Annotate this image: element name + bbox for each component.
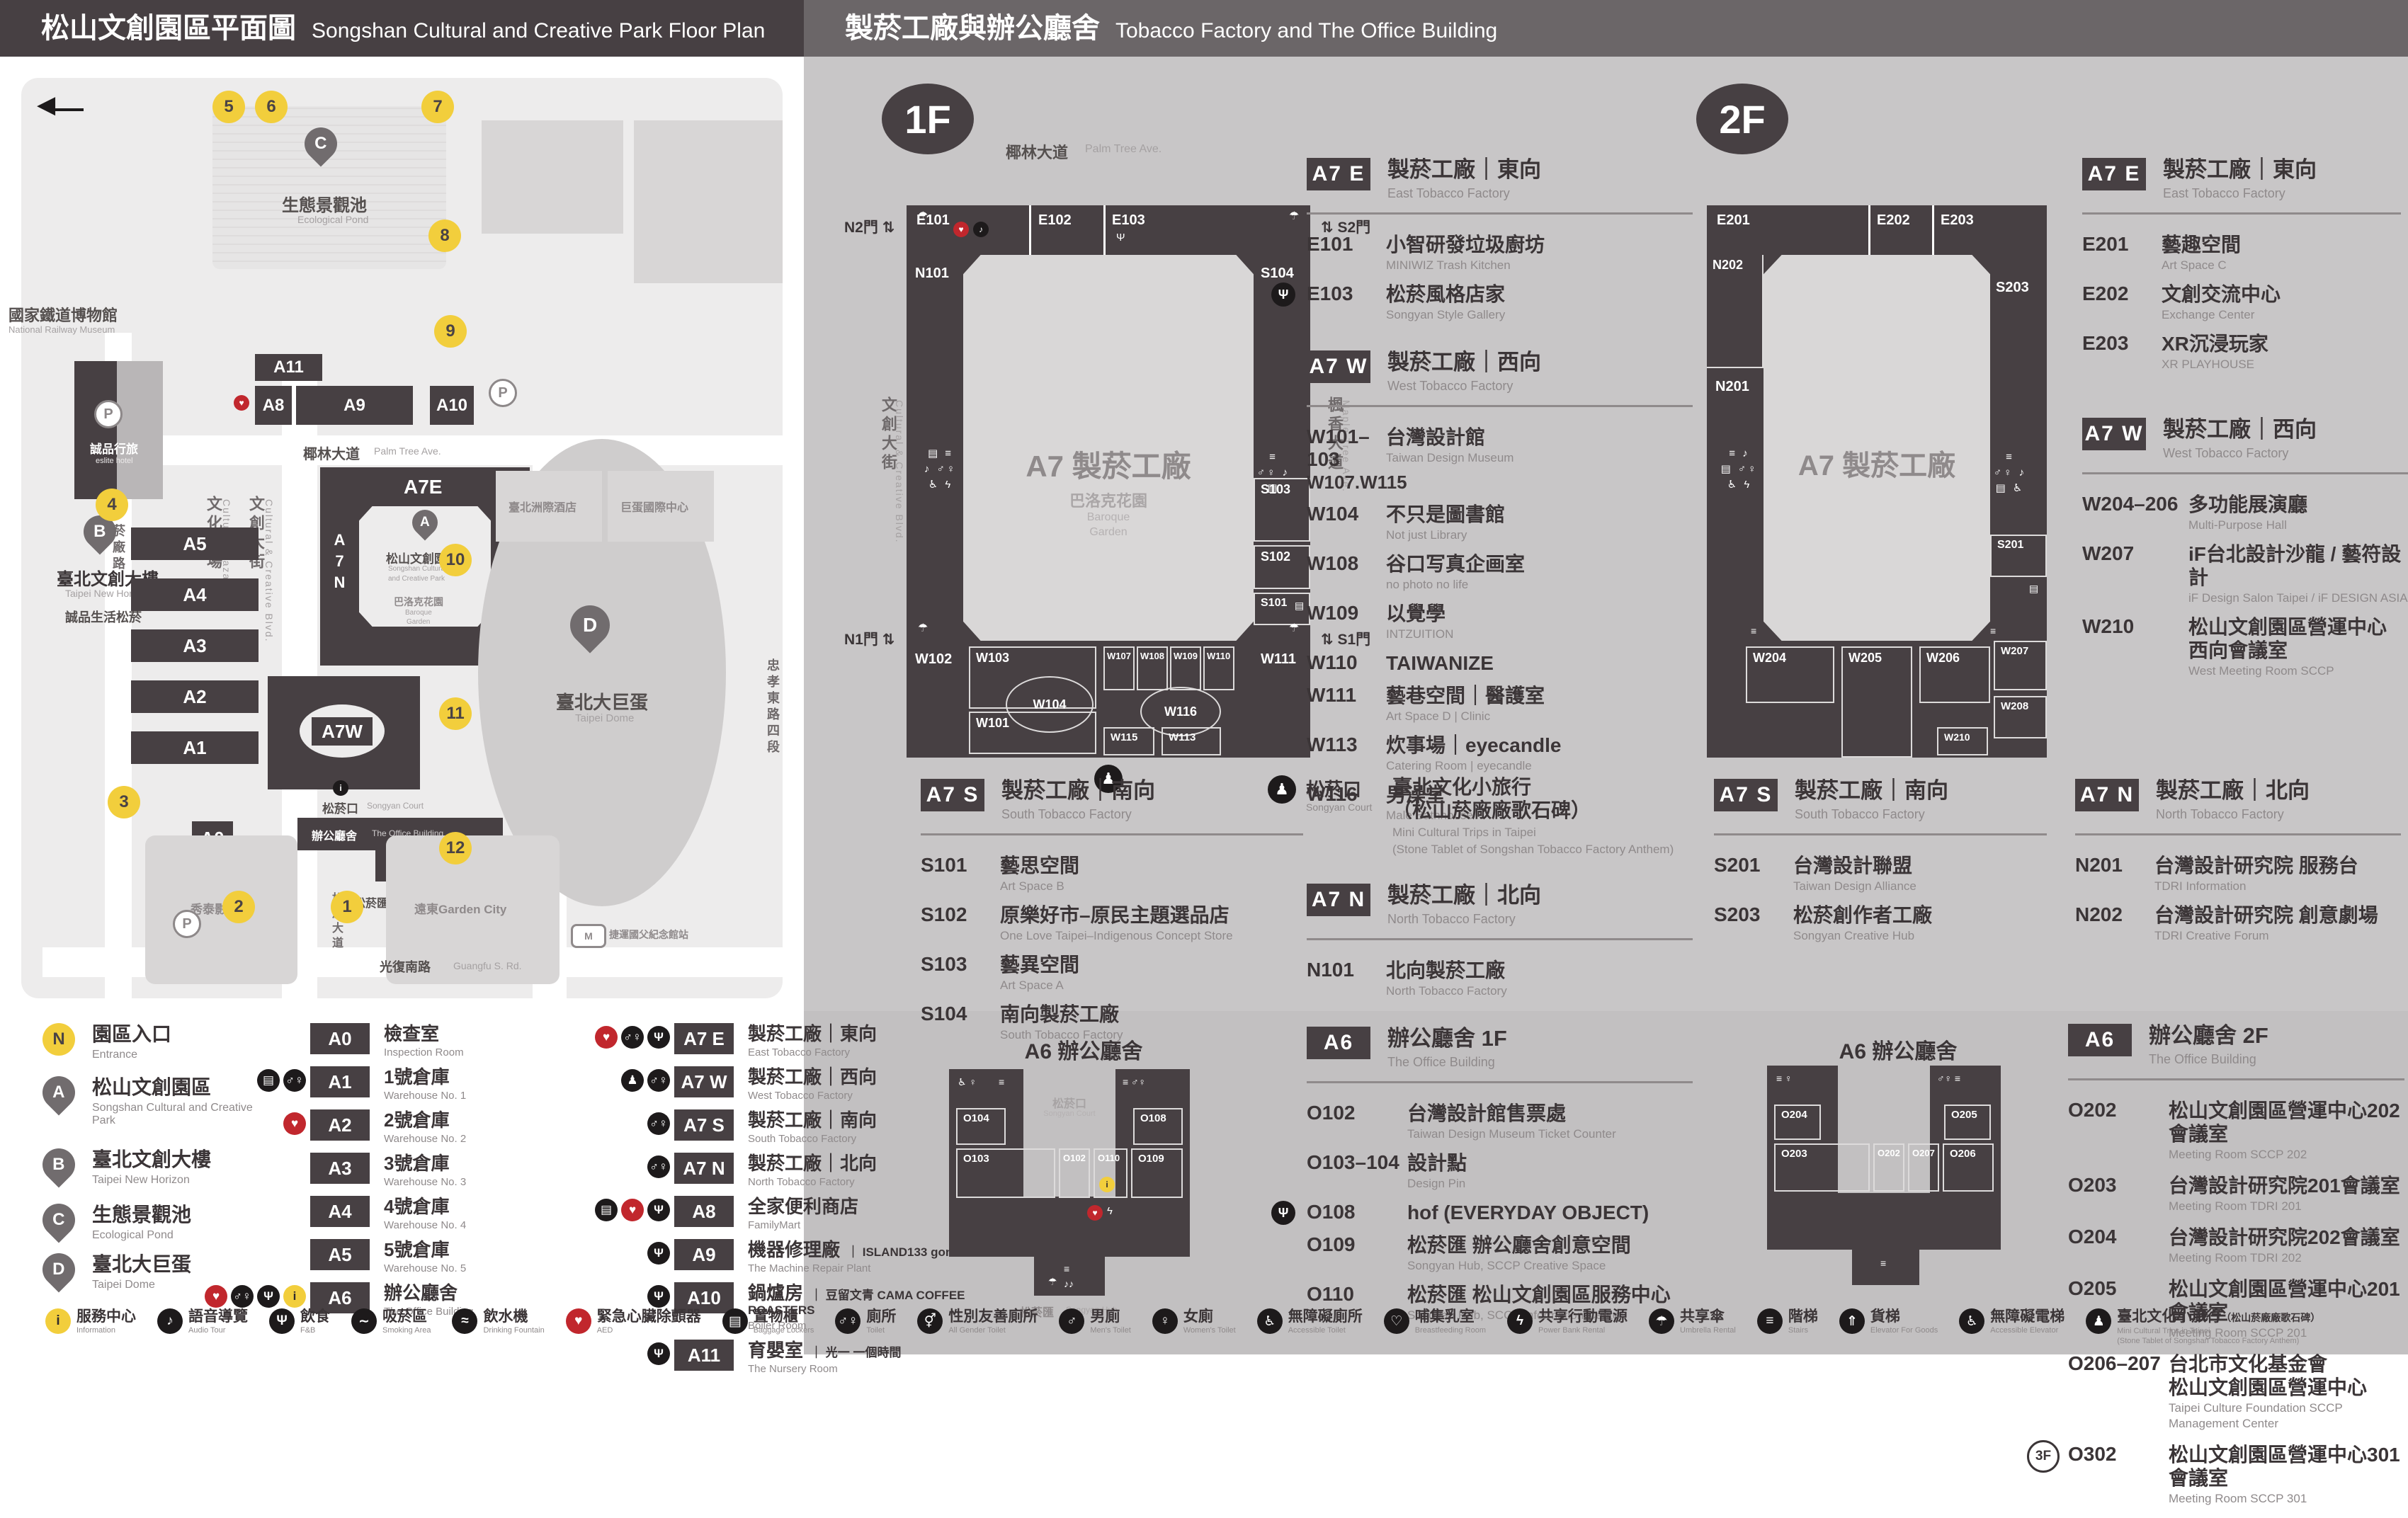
toilet-icon: ♂♀ xyxy=(647,1112,670,1135)
room-S104: S104 xyxy=(1261,266,1294,282)
powerbank-icon: ϟ xyxy=(1107,1205,1113,1217)
room-O202: O202 xyxy=(1873,1143,1904,1192)
court-en: Songyan Court xyxy=(367,801,424,811)
section-title-zh: 製菸工廠｜北向 xyxy=(1387,884,1541,908)
room-W102: W102 xyxy=(915,651,952,668)
section-title-zh: 製菸工廠｜東向 xyxy=(2163,158,2317,182)
facility-item: ♡ 哺集乳室 Breastfeeding Room xyxy=(1384,1308,1486,1335)
room-list-row: W111 藝巷空間｜醫護室Art Space D | Clinic xyxy=(1307,684,1693,724)
facility-item: ϟ 共享行動電源 Power Bank Rental xyxy=(1507,1308,1628,1335)
section-title-zh: 辦公廳舍 2F xyxy=(2149,1024,2268,1048)
men-icon: ♂ xyxy=(1059,1308,1084,1334)
gate-N2: N2門 ⇅ xyxy=(844,216,895,237)
room-E201: E201 xyxy=(1717,212,1750,229)
blvd-en: Cultural & Creative Blvd. xyxy=(263,499,275,669)
nursing-icon: ♡ xyxy=(1384,1308,1409,1334)
toilet-icon: ♂♀ xyxy=(647,1155,670,1178)
section-badge: A7 E xyxy=(1307,158,1370,190)
stairs-icon: ≡ xyxy=(1757,1308,1783,1334)
neighbor-building xyxy=(482,120,623,234)
parking-icon: P xyxy=(489,379,517,407)
accessible-toilet-icon: ♿ ♀ xyxy=(958,1076,977,1088)
f1-baroque-en2: Garden xyxy=(1038,526,1179,539)
room-O108: O108 xyxy=(1133,1108,1183,1145)
hotel-building: 臺北洲際酒店 xyxy=(496,471,602,542)
info-icon: i xyxy=(45,1308,71,1334)
aed-icon: ♥ xyxy=(234,395,249,411)
pin-B-icon: B xyxy=(35,1141,81,1187)
facility-cluster-west: ▤ ≡♪ ♂♀♿ ϟ xyxy=(919,446,962,493)
room-list-row: O109 松菸匯 辦公廳舍創意空間Songyan Hub, SCCP Creat… xyxy=(1307,1233,1693,1274)
section-badge: A7 S xyxy=(1714,779,1778,811)
legend-row: A4 4號倉庫 Warehouse No. 4 xyxy=(310,1196,608,1232)
section-title-en: West Tobacco Factory xyxy=(2163,446,2317,461)
f1-blvd-en: Cultural & Creative Blvd. xyxy=(894,400,905,570)
building-badge: A8 xyxy=(674,1196,734,1227)
section-badge: A7 N xyxy=(1307,884,1370,916)
mrt-zh: 捷運國父紀念館站 xyxy=(609,928,688,942)
entrance-10: 10 xyxy=(439,544,472,576)
room-W210: W210 xyxy=(1937,727,1988,755)
legend-buildings-col1: A0 檢查室 Inspection Room ▤♂♀ A1 1號倉庫 Wareh… xyxy=(310,1023,608,1325)
o2-map-title: A6 辦公廳舍 xyxy=(1817,1034,1980,1065)
label-A7E: A7E xyxy=(404,476,442,498)
room-O103: O103 xyxy=(956,1148,1055,1198)
room-E202: E202 xyxy=(1877,212,1910,229)
toilet-icon: ♂♀ xyxy=(647,1069,670,1092)
room-E203: E203 xyxy=(1941,212,1974,229)
room-W107: W107 xyxy=(1103,646,1135,690)
food-icon: Ψ xyxy=(1116,232,1125,244)
allgender-icon: ⚥ xyxy=(917,1308,943,1334)
railway-museum-zh: 國家鐵道博物館 xyxy=(8,303,118,326)
eslite-hotel-building: P 誠品行旅 eslite hotel xyxy=(74,361,163,499)
legend-B-zh: 臺北文創大樓 xyxy=(92,1148,211,1171)
facility-item: ∼ 吸菸區 Smoking Area xyxy=(351,1308,431,1335)
entrance-5: 5 xyxy=(212,91,245,123)
section-title-en: East Tobacco Factory xyxy=(2163,186,2317,201)
guangfu-en: Guangfu S. Rd. xyxy=(453,960,522,971)
audio-icon: ♪ xyxy=(157,1308,183,1334)
facility-item: ▤ 置物櫃 Baggage Lockers xyxy=(722,1308,814,1335)
umbrella-icon: ☂ xyxy=(1649,1308,1674,1334)
legend-pin-C: C 生態景觀池 Ecological Pond xyxy=(42,1204,191,1242)
entrance-8: 8 xyxy=(428,219,461,252)
facility-item: ⇑ 貨梯 Elevator For Goods xyxy=(1839,1308,1938,1335)
room-W204: W204 xyxy=(1746,646,1834,703)
aed-icon: ♥ xyxy=(595,1026,618,1049)
north-arrow-icon: ◀ xyxy=(37,91,84,119)
room-list-row: E203 XR沉浸玩家XR PLAYHOUSE xyxy=(2082,332,2401,372)
room-list-row: S201 台灣設計聯盟Taiwan Design Alliance xyxy=(1714,854,2047,894)
food-icon: Ψ xyxy=(647,1199,670,1221)
section-badge: A7 W xyxy=(2082,418,2146,450)
left-title-en: Songshan Cultural and Creative Park Floo… xyxy=(312,19,765,43)
room-S102: S102 xyxy=(1254,545,1310,589)
room-list-row: W204–206 多功能展演廳Multi-Purpose Hall xyxy=(2082,493,2408,533)
room-list-row: N101 北向製菸工廠North Tobacco Factory xyxy=(1307,959,1693,999)
audio-tour-icon: ♪♪ xyxy=(1064,1278,1074,1289)
umbrella-icon: ☂ xyxy=(1048,1276,1057,1288)
room-list-row: S103 藝異空間Art Space A xyxy=(921,953,1303,993)
entrance-6: 6 xyxy=(255,91,288,123)
room-W205: W205 xyxy=(1841,646,1912,758)
pin-C-icon: C xyxy=(35,1197,81,1243)
building-badge: A7 E xyxy=(674,1023,734,1054)
section-title-zh: 製菸工廠｜南向 xyxy=(1001,779,1155,803)
floor1-map: E101 E102 E103 Ψ ♥ ♪ N101 S104 S103 S102… xyxy=(907,166,1316,775)
stairs-icon: ≡ xyxy=(1751,625,1756,637)
section-f1-court: ♟ 松菸口 Songyan Court 臺北文化小旅行 （松山菸廠廠歌石碑） M… xyxy=(1268,775,1693,857)
pond-label-en: Ecological Pond xyxy=(297,214,368,225)
pin-A-icon: A xyxy=(35,1069,81,1115)
section-title-en: South Tobacco Factory xyxy=(1001,807,1155,822)
stairs-icon: ≡ xyxy=(1064,1263,1069,1274)
hotel-zh: 臺北洲際酒店 xyxy=(509,498,577,515)
o1-court-en: Songyan Court xyxy=(1027,1109,1112,1118)
room-list-row: 3F O302 松山文創園區營運中心301會議室Meeting Room SCC… xyxy=(2068,1443,2404,1507)
section-title-zh: 製菸工廠｜北向 xyxy=(2156,779,2310,803)
section-title-en: North Tobacco Factory xyxy=(2156,807,2310,822)
facility-item: ♥ 緊急心臟除顫器 AED xyxy=(566,1308,701,1335)
info-icon: i xyxy=(283,1285,306,1308)
room-E102: E102 xyxy=(1038,212,1072,229)
building-badge: A7 N xyxy=(674,1153,734,1184)
umbrella-icon: ☂ xyxy=(1289,209,1299,223)
entrance-1: 1 xyxy=(331,891,363,923)
building-badge: A7 W xyxy=(674,1066,734,1097)
court-item-zh1: 臺北文化小旅行 xyxy=(1392,775,1674,799)
legend-D-en: Taipei Dome xyxy=(92,1279,191,1291)
food-icon: Ψ xyxy=(257,1285,280,1308)
stairs-icon: ≡ xyxy=(999,1076,1004,1088)
left-title-zh: 松山文創園區平面圖 xyxy=(41,0,296,57)
building-A7W: A7W xyxy=(268,676,420,789)
court-item-en1: Mini Cultural Trips in Taipei xyxy=(1392,825,1674,840)
section-title-zh: 製菸工廠｜東向 xyxy=(1387,158,1541,182)
yanchang-zh: 菸廠路 xyxy=(109,524,127,623)
section-title-en: The Office Building xyxy=(1387,1055,1507,1070)
facility-item: ≈ 飲水機 Drinking Fountain xyxy=(452,1308,544,1335)
section-title-en: West Tobacco Factory xyxy=(1387,379,1541,394)
section-badge: A6 xyxy=(2068,1024,2132,1056)
locker-icon: ▤ xyxy=(2029,583,2038,595)
legend-row: ♥ A2 2號倉庫 Warehouse No. 2 xyxy=(310,1109,608,1146)
section-f2-south: A7 S 製菸工廠｜南向 South Tobacco Factory S201 … xyxy=(1714,779,2047,953)
room-list-row: W207 iF台北設計沙龍 / 藝符設計iF Design Salon Taip… xyxy=(2082,542,2408,606)
room-list-row: W110 TAIWANIZE xyxy=(1307,651,1693,675)
section-badge: A6 xyxy=(1307,1027,1370,1059)
room-list-row: W108 谷口写真企画室no photo no life xyxy=(1307,552,1693,593)
right-title-en: Tobacco Factory and The Office Building xyxy=(1115,19,1497,43)
entrance-4: 4 xyxy=(96,489,128,521)
gate-N1: N1門 ⇅ xyxy=(844,628,895,649)
toilet-icon: ♂♀ xyxy=(231,1285,254,1308)
dome-zh: 臺北大巨蛋 xyxy=(556,688,648,714)
palm-ave-en: Palm Tree Ave. xyxy=(374,445,441,457)
room-W111: W111 xyxy=(1261,651,1296,668)
room-list-row: O102 台灣設計館售票處Taiwan Design Museum Ticket… xyxy=(1307,1102,1693,1142)
room-list-row: E202 文創交流中心Exchange Center xyxy=(2082,283,2401,323)
building-A10: A10 xyxy=(430,386,474,425)
aed-icon: ♥ xyxy=(283,1112,306,1135)
umbrella-icon: ☂ xyxy=(918,621,928,635)
legend-C-en: Ecological Pond xyxy=(92,1229,191,1242)
dome-center-building: 巨蛋國際中心 xyxy=(608,471,714,542)
facility-item: ♿ 無障礙廁所 Accessible Toilet xyxy=(1257,1308,1363,1335)
fountain-icon: ≈ xyxy=(452,1308,477,1334)
room-N101: N101 xyxy=(915,266,949,282)
section-badge: A7 N xyxy=(2075,779,2139,811)
label-A7W: A7W xyxy=(312,717,373,746)
office-zh: 辦公廳舍 xyxy=(312,826,357,843)
room-S203: S203 xyxy=(1996,280,2029,296)
food-icon: Ψ xyxy=(647,1242,670,1265)
building-A8: A8 xyxy=(255,386,292,425)
trip-icon: ♟ xyxy=(2086,1308,2111,1334)
stairs-icon: ≡ ♀ xyxy=(1776,1073,1793,1084)
section-title-zh: 製菸工廠｜南向 xyxy=(1795,779,1948,803)
court-item-zh2: （松山菸廠廠歌石碑） xyxy=(1392,799,1674,822)
room-list-row: O202 松山文創園區營運中心202會議室Meeting Room SCCP 2… xyxy=(2068,1099,2404,1163)
railway-museum-en: National Railway Museum xyxy=(8,324,115,335)
room-O205: O205 xyxy=(1944,1105,1991,1140)
pin-D-icon: D xyxy=(35,1246,81,1292)
room-list-row: O206–207 台北市文化基金會松山文創園區營運中心Taipei Cultur… xyxy=(2068,1352,2404,1432)
food-icon: Ψ xyxy=(1271,1201,1295,1225)
room-list-row: W113 炊事場｜eyecandleCatering Room | eyecan… xyxy=(1307,734,1693,774)
room-list-row: O204 台灣設計研究院202會議室Meeting Room TDRI 202 xyxy=(2068,1226,2404,1266)
toilet-icon: ♂♀ xyxy=(621,1026,644,1049)
legend-row: ▤♂♀ A1 1號倉庫 Warehouse No. 1 xyxy=(310,1066,608,1102)
room-list-row: Ψ O108 hof (EVERYDAY OBJECT) xyxy=(1307,1201,1693,1224)
room-O203: O203 xyxy=(1774,1143,1870,1192)
room-list-row: O103–104 設計點Design Pin xyxy=(1307,1151,1693,1192)
aed-icon: ♥ xyxy=(953,222,969,237)
room-W208: W208 xyxy=(1994,696,2047,738)
room-W110: W110 xyxy=(1203,646,1234,690)
right-title-zh: 製菸工廠與辦公廳舍 xyxy=(845,0,1100,57)
entrance-11: 11 xyxy=(439,697,472,730)
eslite-hotel-zh: 誠品行旅 xyxy=(90,439,138,457)
baroque-en2: Garden xyxy=(407,618,430,626)
facility-item: ≡ 階梯 Stairs xyxy=(1757,1308,1818,1335)
entrance-12: 12 xyxy=(439,832,472,864)
room-W113: W113 xyxy=(1162,727,1221,755)
room-O102: O102 xyxy=(1059,1148,1090,1198)
legend-entrance-en: Entrance xyxy=(92,1049,171,1061)
sccp-en2: and Creative Park xyxy=(388,575,445,583)
parking-icon: P xyxy=(173,910,201,938)
section-badge: A7 E xyxy=(2082,158,2146,190)
building-badge: A4 xyxy=(310,1196,370,1227)
locker-icon: ▤ xyxy=(257,1069,280,1092)
facility-item: ♪ 語音導覽 Audio Tour xyxy=(157,1308,248,1335)
facility-item: i 服務中心 Information xyxy=(45,1308,136,1335)
section-office-1f: A6 辦公廳舍 1F The Office Building O102 台灣設計… xyxy=(1307,1027,1693,1332)
section-f2-west: A7 W 製菸工廠｜西向 West Tobacco Factory W204–2… xyxy=(2082,418,2408,688)
women-icon: ♀ xyxy=(1152,1308,1178,1334)
info-icon: i xyxy=(1099,1177,1115,1192)
stairs-icon: ≡ xyxy=(1880,1257,1886,1269)
facility-item: ♀ 女廁 Women's Toilet xyxy=(1152,1308,1236,1335)
floor2-badge: 2F xyxy=(1696,84,1788,154)
facility-item: ♿ 無障礙電梯 Accessible Elevator xyxy=(1959,1308,2065,1335)
building-badge: A3 xyxy=(310,1153,370,1184)
room-N201: N201 xyxy=(1715,379,1749,395)
room-O104: O104 xyxy=(956,1108,1006,1145)
room-O206: O206 xyxy=(1943,1143,1994,1192)
building-badge: A7 S xyxy=(674,1109,734,1141)
legend-pin-B: B 臺北文創大樓 Taipei New Horizon xyxy=(42,1148,211,1187)
food-icon: Ψ xyxy=(647,1285,670,1308)
legend-row: A3 3號倉庫 Warehouse No. 3 xyxy=(310,1153,608,1189)
room-list-row: S102 原樂好市–原民主題選品店One Love Taipei–Indigen… xyxy=(921,903,1303,944)
toilet-icon: ♂♀ xyxy=(835,1308,861,1334)
room-N202: N202 xyxy=(1707,255,1764,368)
building-A4: A4 xyxy=(131,578,259,611)
room-E103: E103 xyxy=(1112,212,1145,229)
room-W108: W108 xyxy=(1137,646,1168,690)
legend-B-en: Taipei New Horizon xyxy=(92,1174,211,1187)
floor1-badge: 1F xyxy=(882,84,974,154)
eslite-hotel-en: eslite hotel xyxy=(96,457,133,465)
legend-entrance-zh: 園區入口 xyxy=(92,1023,171,1046)
legend-row: A5 5號倉庫 Warehouse No. 5 xyxy=(310,1239,608,1275)
walking-person-icon: ♟ xyxy=(1268,775,1296,804)
facility-item: ☂ 共享傘 Umbrella Rental xyxy=(1649,1308,1736,1335)
aed-icon: ♥ xyxy=(621,1199,644,1221)
legend-row: Ψ A9 機器修理廠｜ ISLAND133 gonna' The Machine… xyxy=(674,1239,979,1275)
locker-icon: ▤ xyxy=(595,1199,618,1221)
building-badge: A0 xyxy=(310,1023,370,1054)
room-list-row: O203 台灣設計研究院201會議室Meeting Room TDRI 201 xyxy=(2068,1174,2404,1214)
section-f1-west: A7 W 製菸工廠｜西向 West Tobacco Factory W101–1… xyxy=(1307,350,1693,833)
legend-pin-D: D 臺北大巨蛋 Taipei Dome xyxy=(42,1253,191,1291)
toilet-icon: ≡ ♂♀ xyxy=(1123,1076,1146,1088)
section-title-en: East Tobacco Factory xyxy=(1387,186,1541,201)
f1-palm-en: Palm Tree Ave. xyxy=(1085,143,1162,156)
info-icon: i xyxy=(333,780,348,796)
food-icon: Ψ xyxy=(269,1308,295,1334)
f1-baroque-en1: Baroque xyxy=(1038,511,1179,524)
entrance-7: 7 xyxy=(421,91,454,123)
room-list-row: Ψ E103 松菸風格店家Songyan Style Gallery xyxy=(1307,283,1693,323)
room-W109: W109 xyxy=(1170,646,1201,690)
section-title-en: North Tobacco Factory xyxy=(1387,912,1541,927)
toilet-icon: ♂♀ xyxy=(283,1069,306,1092)
legend-C-zh: 生態景觀池 xyxy=(92,1204,191,1226)
building-badge: A2 xyxy=(310,1109,370,1141)
o1-map-title: A6 辦公廳舍 xyxy=(1002,1034,1165,1065)
section-f1-east: A7 E 製菸工廠｜東向 East Tobacco Factory E101 小… xyxy=(1307,158,1693,332)
food-icon: Ψ xyxy=(647,1026,670,1049)
court-label-zh: 松菸口 xyxy=(1306,775,1382,801)
entrance-icon: N xyxy=(42,1023,75,1056)
room-list-row: E101 小智研發垃圾廚坊MINIWIZ Trash Kitchen xyxy=(1307,233,1693,273)
f2-center-label: A7 製菸工廠 xyxy=(1753,443,2001,484)
accessible-icon: ♿ xyxy=(1257,1308,1283,1334)
building-badge: A9 xyxy=(674,1239,734,1270)
legend-D-zh: 臺北大巨蛋 xyxy=(92,1253,191,1276)
entrance-9: 9 xyxy=(434,315,467,348)
umbrella-icon: ☂ xyxy=(918,209,928,223)
guangfu-zh: 光復南路 xyxy=(380,957,431,976)
facility-cluster-east: ≡♂♀ ♪▤ xyxy=(1252,450,1295,496)
garden-city-zh: 遠東Garden City xyxy=(414,899,506,917)
dome-en: Taipei Dome xyxy=(575,712,634,724)
toilet-icon: ♂♀ ≡ xyxy=(1937,1073,1960,1084)
parking-icon: P xyxy=(94,400,123,428)
facility-item: ♂♀ 廁所 Toilet xyxy=(835,1308,896,1335)
entrance-3: 3 xyxy=(108,786,140,818)
baroque-zh: 巴洛克花園 xyxy=(394,595,443,609)
section-f2-east: A7 E 製菸工廠｜東向 East Tobacco Factory E201 藝… xyxy=(2082,158,2401,382)
room-list-row: W101–103W107.W115 台灣設計館Taiwan Design Mus… xyxy=(1307,426,1693,493)
smoking-icon: ∼ xyxy=(351,1308,377,1334)
legend-entrance: N 園區入口 Entrance xyxy=(42,1023,171,1061)
room-W101: W101 xyxy=(969,712,1096,754)
office-2f-map: A6 辦公廳舍 O204 O203 O202 O207 O206 O205 ≡ … xyxy=(1764,1027,2011,1310)
building-A2: A2 xyxy=(131,680,259,713)
facility-item: ♂ 男廁 Men's Toilet xyxy=(1059,1308,1131,1335)
room-W207: W207 xyxy=(1994,641,2047,690)
building-badge: A5 xyxy=(310,1239,370,1270)
room-list-row: N202 台灣設計研究院 創意劇場TDRI Creative Forum xyxy=(2075,903,2401,944)
section-title-en: The Office Building xyxy=(2149,1052,2268,1067)
room-S201: S201 xyxy=(1990,535,2047,577)
section-title-zh: 製菸工廠｜西向 xyxy=(1387,350,1541,375)
building-A9: A9 xyxy=(296,386,413,425)
section-title-zh: 製菸工廠｜西向 xyxy=(2163,418,2317,442)
court-zh: 松菸口 xyxy=(322,799,358,816)
floor-3f-marker: 3F xyxy=(2027,1440,2060,1473)
accelevator-icon: ♿ xyxy=(1959,1308,1984,1334)
powerbank-icon: ϟ xyxy=(1507,1308,1533,1334)
food-icon: Ψ xyxy=(1271,283,1295,307)
room-list-row: W210 松山文創園區營運中心西向會議室West Meeting Room SC… xyxy=(2082,615,2408,679)
cargo-icon: ⇑ xyxy=(1839,1308,1865,1334)
locker-icon: ▤ xyxy=(1295,600,1304,612)
section-badge: A7 W xyxy=(1307,350,1370,383)
room-list-row: W109 以覺學INTZUITION xyxy=(1307,602,1693,642)
room-list-row: N201 台灣設計研究院 服務台TDRI Information xyxy=(2075,854,2401,894)
park-map: ◀ C 生態景觀池 Ecological Pond 國家鐵道博物館 Nation… xyxy=(0,57,804,998)
room-list-row: W104 不只是圖書館Not just Library xyxy=(1307,503,1693,543)
facility-item: Ψ 飲食 F&B xyxy=(269,1308,330,1335)
room-W115: W115 xyxy=(1103,727,1154,755)
f1-center-label: A7 製菸工廠 xyxy=(984,443,1232,486)
section-f2-north: A7 N 製菸工廠｜北向 North Tobacco Factory N201 … xyxy=(2075,779,2401,953)
zhongxiao-zh: 忠孝東路四段 xyxy=(763,658,782,828)
sccp-en1: Songshan Cultural xyxy=(388,565,446,573)
legend-row: ♟♂♀ A7 W 製菸工廠｜西向 West Tobacco Factory xyxy=(674,1066,979,1102)
palm-ave-zh: 椰林大道 xyxy=(303,443,360,463)
section-f1-south: A7 S 製菸工廠｜南向 South Tobacco Factory S101 … xyxy=(921,779,1303,1052)
entrance-2: 2 xyxy=(222,891,255,923)
room-O109: O109 xyxy=(1131,1148,1183,1198)
audio-tour-icon: ♪ xyxy=(973,222,989,237)
neighbor-building xyxy=(634,120,783,283)
room-list-row: E201 藝趣空間Art Space C xyxy=(2082,233,2401,273)
aed-icon: ♥ xyxy=(566,1308,591,1334)
section-f1-north: A7 N 製菸工廠｜北向 North Tobacco Factory N101 … xyxy=(1307,884,1693,1008)
legend-row: ♂♀ A7 N 製菸工廠｜北向 North Tobacco Factory xyxy=(674,1153,979,1189)
o1-court-zh: 松菸口 xyxy=(1027,1094,1112,1111)
aed-icon: ♥ xyxy=(205,1285,227,1308)
dome-center-zh: 巨蛋國際中心 xyxy=(620,498,688,515)
tenant-note: ｜ 光一 一個時間 xyxy=(810,1346,901,1359)
